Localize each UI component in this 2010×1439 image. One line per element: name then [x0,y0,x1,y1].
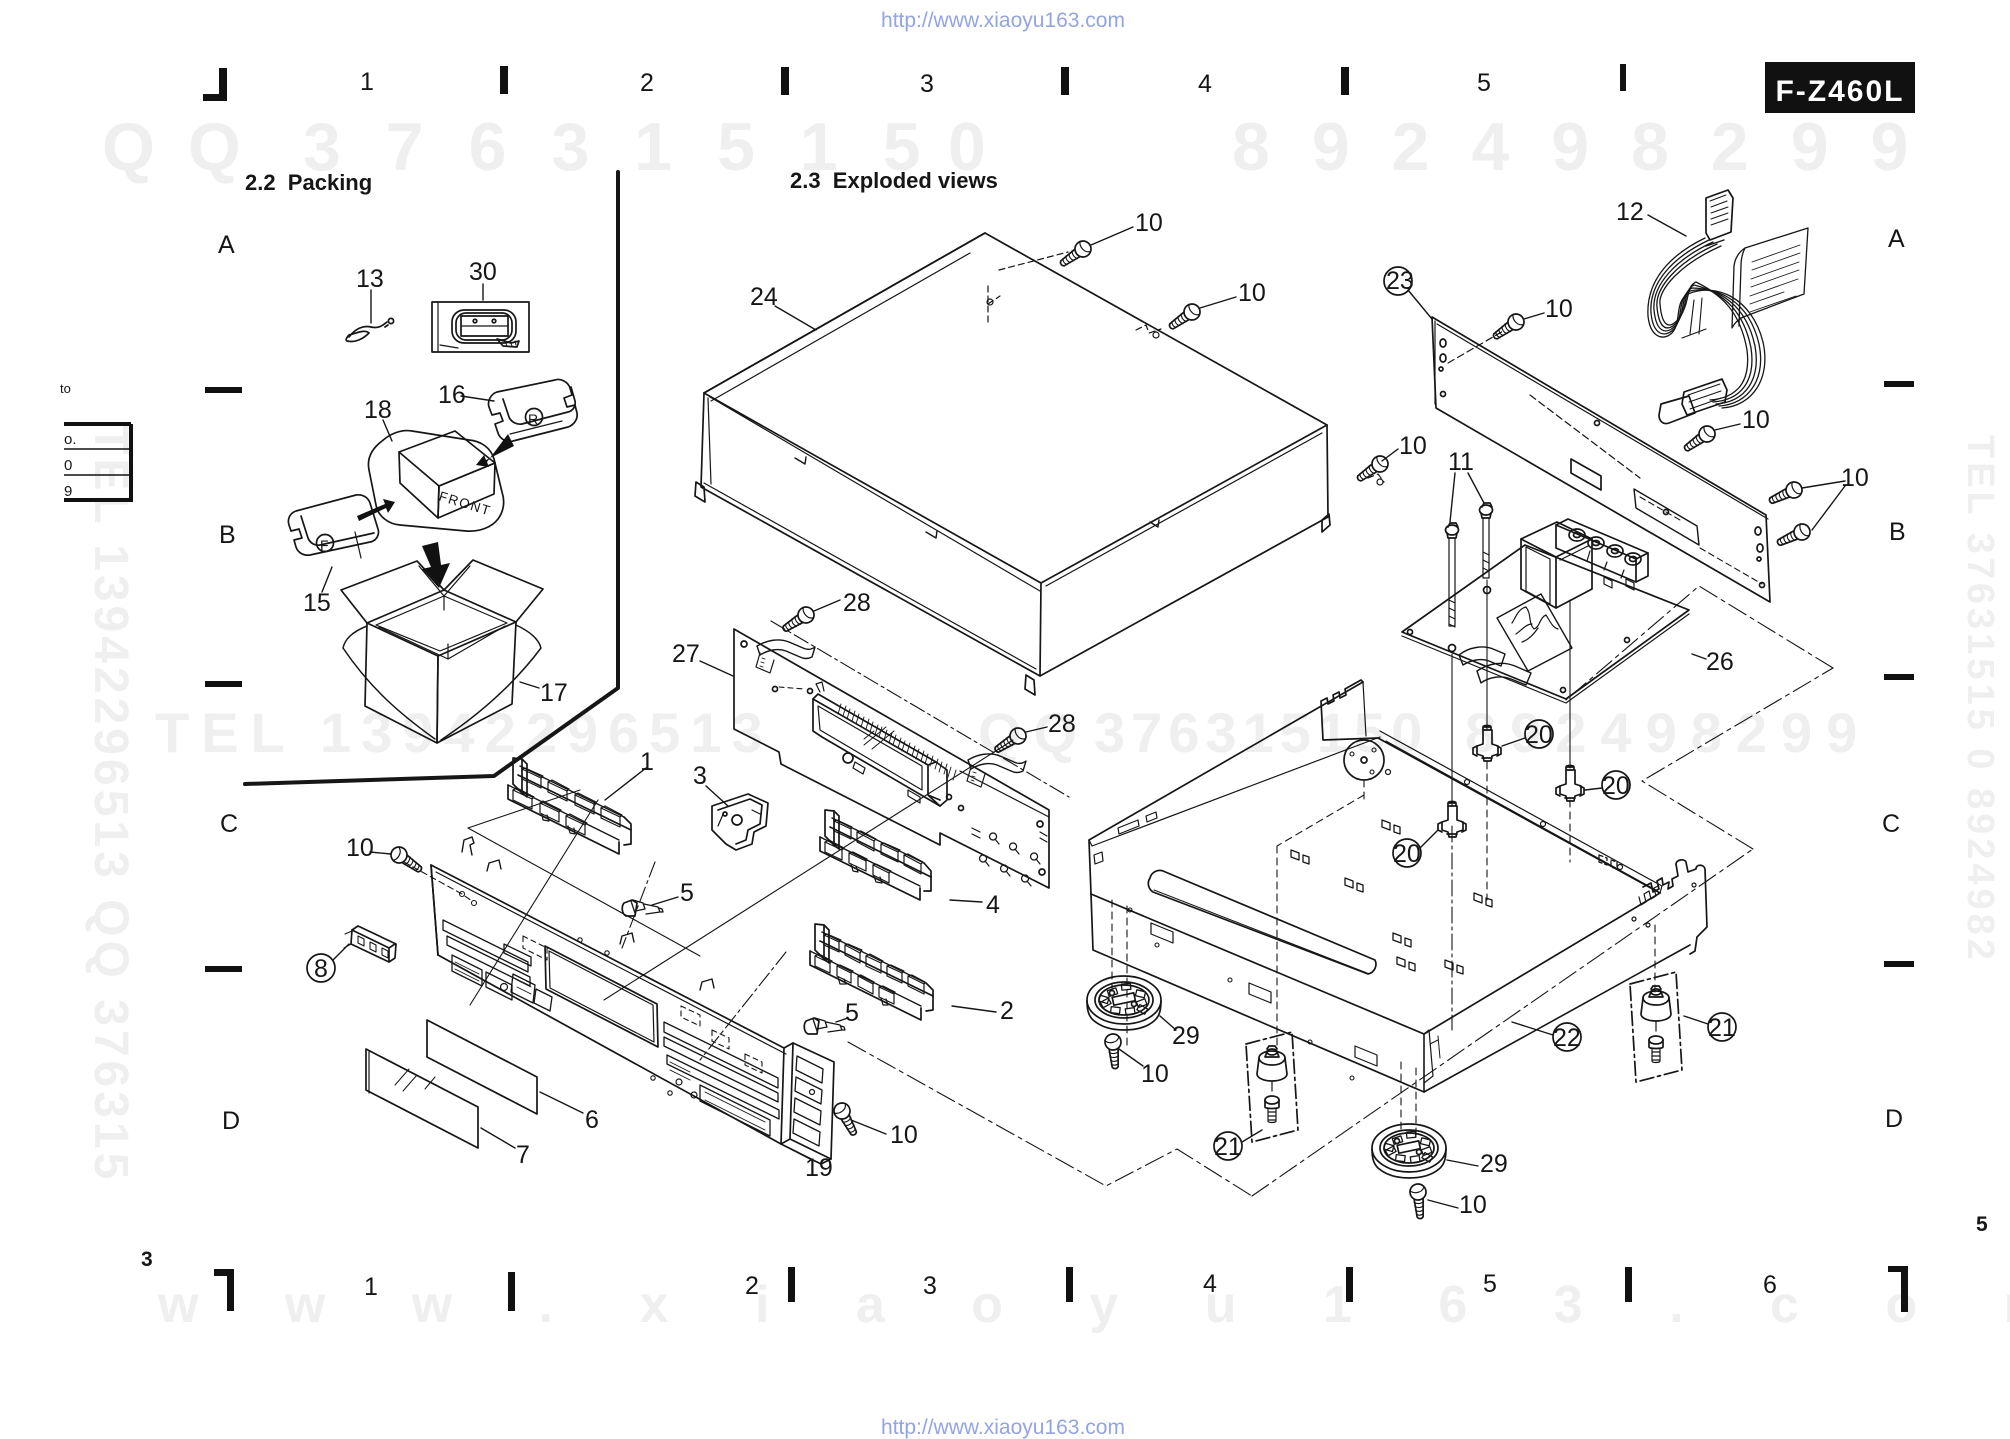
svg-text:11: 11 [1448,448,1474,476]
svg-text:2: 2 [745,1272,759,1300]
svg-text:7: 7 [516,1141,530,1169]
svg-text:21: 21 [1708,1014,1736,1042]
svg-text:http://www.xiaoyu163.com: http://www.xiaoyu163.com [881,9,1125,32]
svg-text:D: D [222,1107,240,1135]
svg-text:10: 10 [1841,464,1869,492]
svg-text:5: 5 [1976,1213,1988,1236]
svg-text:10: 10 [346,834,374,862]
svg-text:3: 3 [920,70,934,98]
svg-text:10: 10 [1545,295,1573,323]
svg-text:10: 10 [1399,432,1427,460]
svg-text:1: 1 [640,748,654,776]
svg-text:13: 13 [356,265,384,293]
svg-text:4: 4 [986,891,1000,919]
svg-text:1: 1 [364,1273,378,1301]
svg-text:24: 24 [750,283,778,311]
svg-text:F-Z460L: F-Z460L [1775,75,1904,108]
svg-text:29: 29 [1172,1022,1200,1050]
svg-text:3: 3 [141,1248,153,1271]
svg-text:D: D [1885,1105,1903,1133]
svg-text:8: 8 [314,955,328,983]
svg-text:22: 22 [1553,1024,1581,1052]
svg-text:5: 5 [1477,69,1491,97]
svg-text:10: 10 [890,1121,918,1149]
svg-text:C: C [1882,810,1900,838]
svg-text:4: 4 [1198,70,1212,98]
svg-text:23: 23 [1386,267,1414,295]
svg-text:19: 19 [805,1154,833,1182]
svg-text:26: 26 [1706,648,1734,676]
svg-text:29: 29 [1480,1150,1508,1178]
svg-text:20: 20 [1602,772,1630,800]
svg-text:27: 27 [672,640,700,668]
svg-text:2.2 Packing: 2.2 Packing [245,170,372,195]
svg-text:15: 15 [303,589,331,617]
svg-text:TEL 37631515 0 8924982: TEL 37631515 0 8924982 [1959,435,2001,964]
svg-text:5: 5 [1483,1270,1497,1298]
svg-text:to: to [60,381,71,396]
svg-text:http://www.xiaoyu163.com: http://www.xiaoyu163.com [881,1416,1125,1439]
svg-text:2: 2 [1000,997,1014,1025]
svg-text:21: 21 [1214,1133,1242,1161]
svg-text:30: 30 [469,258,497,286]
svg-text:20: 20 [1393,840,1421,868]
svg-text:B: B [219,521,236,549]
svg-text:o.: o. [64,431,77,448]
svg-text:w w w . x i a o y u 1 6 3 . c: w w w . x i a o y u 1 6 3 . c o m [157,1276,2010,1334]
svg-text:F: F [320,537,329,553]
svg-text:A: A [218,231,235,259]
svg-text:A: A [1888,225,1905,253]
svg-text:10: 10 [1742,406,1770,434]
svg-text:10: 10 [1459,1191,1487,1219]
svg-text:12: 12 [1616,198,1644,226]
svg-text:TEL: TEL [155,701,297,764]
svg-text:376315150: 376315150 [1094,701,1428,764]
svg-text:3: 3 [923,1272,937,1300]
svg-text:16: 16 [438,381,466,409]
svg-text:4: 4 [1203,1270,1217,1298]
svg-text:10: 10 [1141,1060,1169,1088]
svg-text:TEL 13942296513 QQ 376315: TEL 13942296513 QQ 376315 [84,425,137,1183]
svg-text:28: 28 [1048,710,1076,738]
svg-text:892498299: 892498299 [1232,109,1950,185]
svg-text:C: C [220,810,238,838]
svg-text:2: 2 [640,69,654,97]
svg-text:5: 5 [680,879,694,907]
svg-text:0: 0 [64,457,72,474]
svg-text:17: 17 [540,679,568,707]
svg-text:6: 6 [1763,1271,1777,1299]
svg-text:R: R [528,411,538,427]
svg-text:1: 1 [360,68,374,96]
svg-text:18: 18 [364,396,392,424]
svg-text:10: 10 [1238,279,1266,307]
svg-text:6: 6 [585,1106,599,1134]
svg-text:20: 20 [1525,721,1553,749]
svg-text:28: 28 [843,589,871,617]
svg-text:2.3 Exploded views: 2.3 Exploded views [790,168,998,193]
svg-text:5: 5 [845,999,859,1027]
svg-text:3: 3 [693,762,707,790]
svg-text:13942296513: 13942296513 [320,701,773,764]
svg-text:10: 10 [1135,209,1163,237]
svg-text:9: 9 [64,483,72,500]
svg-text:B: B [1889,518,1906,546]
